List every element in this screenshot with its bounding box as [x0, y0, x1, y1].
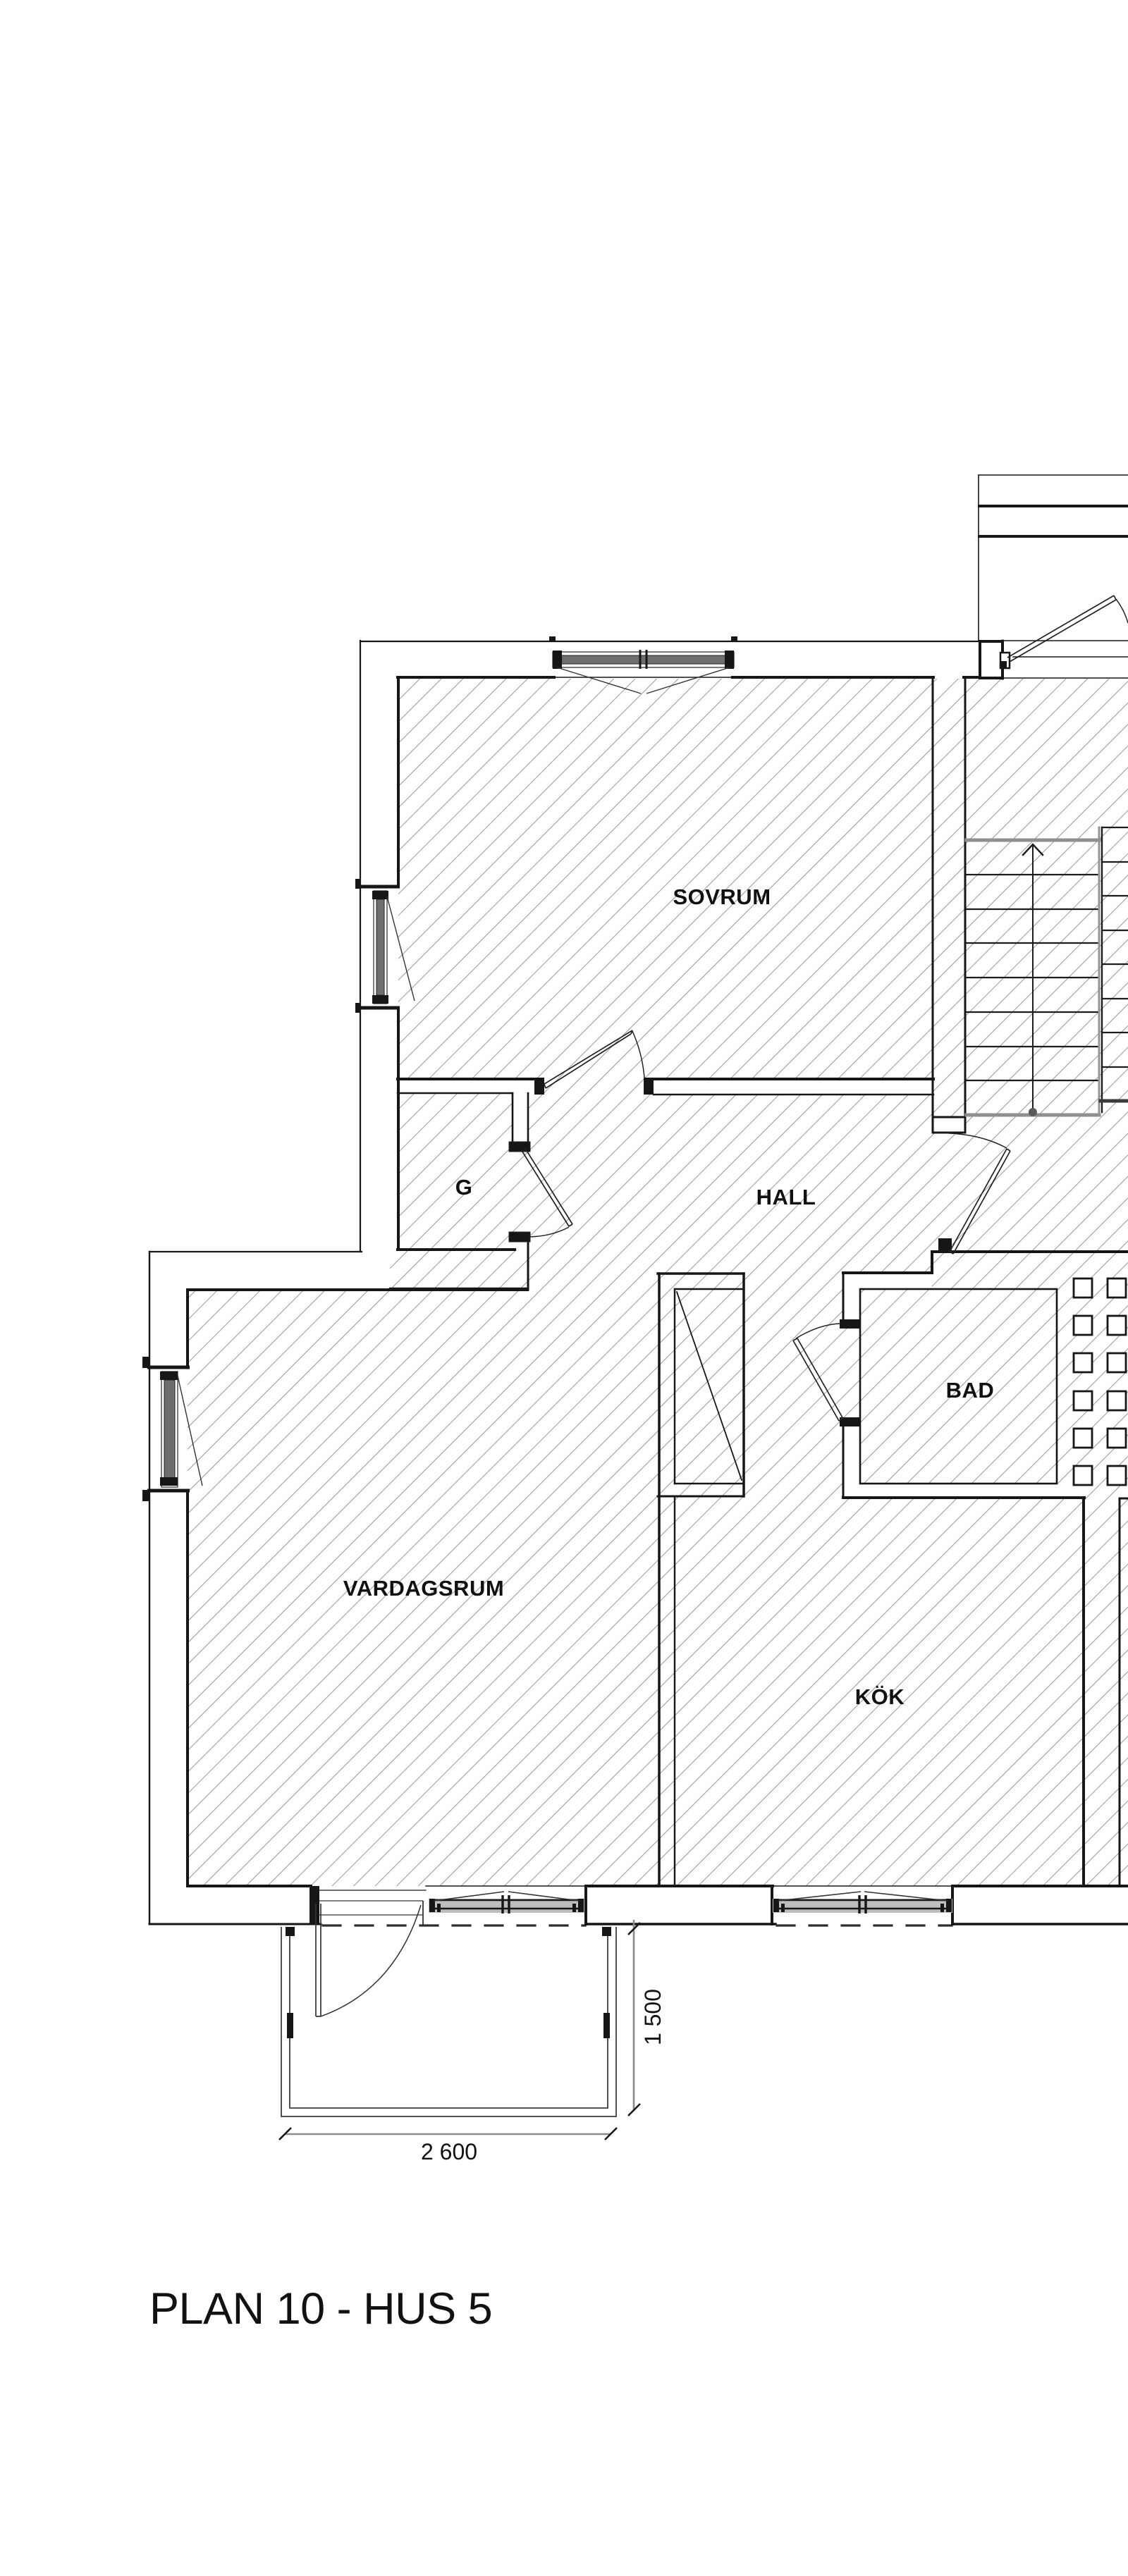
- svg-text:PLAN 10 - HUS 5: PLAN 10 - HUS 5: [149, 2284, 492, 2334]
- svg-text:BAD: BAD: [946, 1378, 995, 1403]
- svg-text:1 500: 1 500: [640, 1989, 666, 2045]
- svg-text:KÖK: KÖK: [855, 1684, 905, 1709]
- svg-text:G: G: [455, 1175, 473, 1200]
- svg-text:VARDAGSRUM: VARDAGSRUM: [343, 1576, 504, 1601]
- svg-text:SOVRUM: SOVRUM: [673, 885, 771, 909]
- svg-text:HALL: HALL: [756, 1185, 816, 1209]
- svg-text:2 600: 2 600: [421, 2139, 477, 2164]
